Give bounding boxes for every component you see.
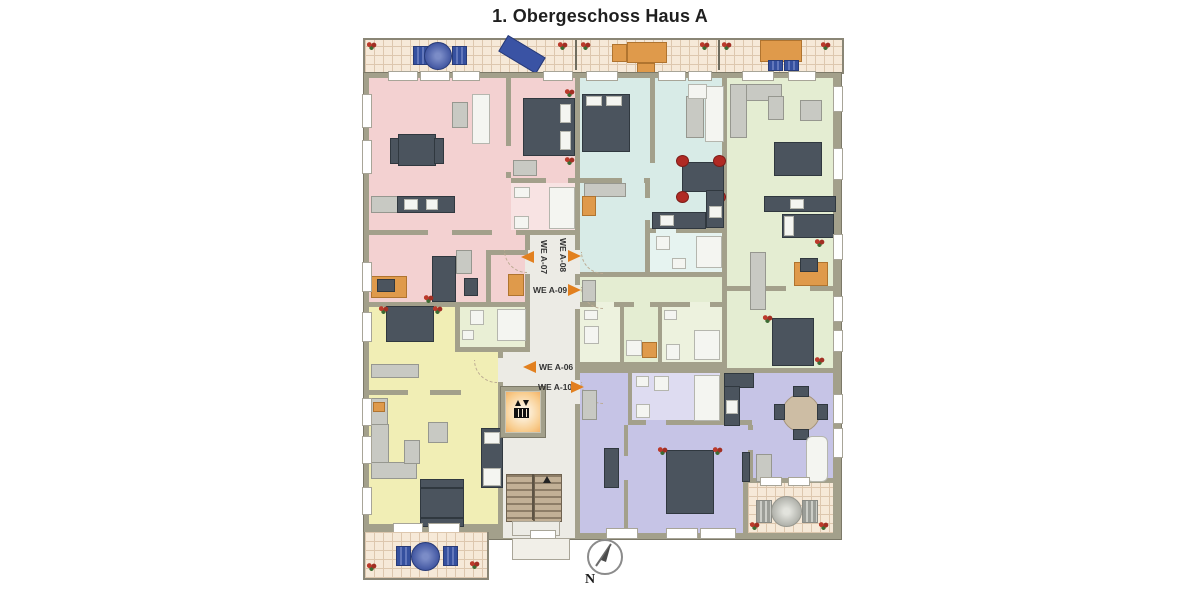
entrance-arrow-we-a-08 — [568, 250, 581, 262]
apartment-label-we-a-08: WE A-08 — [558, 238, 568, 272]
wall-segment — [486, 255, 491, 302]
flower-pot — [432, 305, 443, 314]
stove — [709, 206, 722, 218]
window — [700, 528, 736, 539]
balcony-chair — [802, 500, 818, 523]
entrance-arrow-we-a-09 — [568, 284, 581, 296]
entrance-arrow-we-a-07 — [521, 251, 534, 263]
window — [742, 71, 774, 81]
balcony-table — [771, 496, 802, 527]
balcony-chair — [452, 46, 467, 65]
sideboard — [452, 102, 468, 128]
door-opening — [428, 230, 452, 235]
window — [420, 71, 450, 81]
window — [666, 528, 698, 539]
sink — [462, 330, 474, 340]
pillow — [586, 96, 602, 106]
dining-chair — [434, 138, 444, 164]
pillow — [784, 216, 794, 236]
balcony-table — [627, 42, 667, 63]
toilet — [470, 310, 484, 325]
dining-chair — [676, 191, 689, 203]
window — [362, 487, 372, 515]
fridge — [483, 468, 501, 486]
toilet — [656, 236, 670, 250]
window — [586, 71, 618, 81]
sink — [404, 199, 418, 210]
stove — [426, 199, 438, 210]
round-table — [782, 394, 820, 432]
window — [452, 71, 480, 81]
toilet — [666, 344, 680, 360]
balcony-chair — [396, 546, 411, 566]
window — [833, 330, 843, 352]
dining-chair — [774, 404, 785, 420]
balcony-chair — [768, 60, 783, 71]
balcony-divider — [575, 40, 577, 70]
flower-pot — [564, 88, 575, 97]
armchair — [800, 100, 822, 121]
window — [833, 86, 843, 112]
stair-direction-arrow — [543, 476, 551, 483]
door-opening-we-a-06 — [498, 358, 503, 382]
lounge-chair — [806, 436, 828, 482]
flower-pot — [580, 41, 591, 50]
window — [388, 71, 418, 81]
tv-board — [742, 452, 750, 482]
flower-pot — [762, 314, 773, 323]
entrance-arrow-we-a-10 — [571, 381, 584, 393]
pillow — [560, 131, 571, 150]
apartment-label-we-a-07: WE A-07 — [539, 240, 549, 274]
window — [788, 71, 816, 81]
balcony-chair — [756, 500, 772, 523]
washer — [636, 404, 650, 418]
window — [833, 234, 843, 260]
door-opening — [748, 430, 753, 450]
flower-pot — [366, 562, 377, 571]
flower-pot — [378, 305, 389, 314]
wall-segment — [455, 307, 460, 347]
wardrobe — [582, 390, 597, 420]
sofa — [371, 462, 417, 479]
north-compass — [587, 539, 623, 575]
window — [362, 262, 372, 292]
bed — [432, 256, 456, 302]
dining-bench — [420, 479, 464, 488]
dining-chair — [793, 386, 809, 397]
wall-segment — [455, 347, 530, 352]
sink — [484, 432, 500, 444]
towel-shelf — [642, 342, 657, 358]
flower-pot — [699, 41, 710, 50]
balcony-door — [788, 477, 810, 486]
north-label: N — [585, 572, 595, 588]
floor-plan-page: 1. Obergeschoss Haus A — [0, 0, 1200, 600]
balcony-divider — [718, 40, 720, 70]
flower-pot — [469, 560, 480, 569]
door-opening — [492, 230, 516, 235]
wall-segment — [727, 286, 833, 291]
shower — [696, 236, 722, 268]
dresser — [464, 278, 478, 296]
sofa — [705, 86, 724, 142]
wall-segment — [620, 307, 624, 362]
sink — [660, 215, 674, 226]
toilet — [584, 326, 599, 344]
window — [833, 296, 843, 322]
shower — [694, 330, 720, 360]
sink — [664, 310, 677, 320]
window — [833, 394, 843, 424]
balcony-table — [760, 40, 802, 62]
wall-segment — [658, 307, 662, 362]
sink — [584, 310, 598, 320]
door-opening — [546, 178, 568, 183]
balcony-chair — [443, 546, 458, 566]
apartment-label-we-a-09: WE A-09 — [533, 285, 567, 295]
flower-pot — [557, 41, 568, 50]
door-opening — [645, 198, 650, 220]
window — [606, 528, 638, 539]
bed — [772, 318, 814, 366]
flower-pot — [657, 446, 668, 455]
door-opening — [646, 420, 666, 425]
balcony-table — [424, 42, 452, 70]
flower-pot — [818, 521, 829, 530]
window — [362, 398, 372, 426]
wardrobe — [513, 160, 537, 176]
shelf — [508, 274, 524, 296]
staircase-divider — [532, 474, 534, 520]
window — [362, 436, 372, 464]
balcony-door — [760, 477, 782, 486]
dining-table — [774, 142, 822, 176]
dining-table — [420, 488, 464, 518]
apartment-label-we-a-06: WE A-06 — [539, 362, 573, 372]
chaise — [686, 96, 704, 138]
door-opening — [624, 456, 628, 480]
window — [543, 71, 573, 81]
flower-pot — [712, 446, 723, 455]
door-opening — [634, 302, 650, 307]
side-table — [768, 96, 784, 120]
wardrobe — [456, 250, 472, 274]
flower-pot — [423, 294, 434, 303]
entrance-porch — [512, 538, 570, 560]
bathtub — [694, 375, 720, 421]
coffee-table — [404, 440, 420, 464]
sink — [514, 187, 530, 198]
washer — [626, 340, 642, 356]
window — [688, 71, 712, 81]
sink — [790, 199, 804, 209]
dining-table — [398, 134, 436, 166]
flower-pot — [814, 356, 825, 365]
flower-pot — [814, 238, 825, 247]
door-opening — [786, 286, 810, 291]
wardrobe — [582, 196, 596, 216]
sofa — [688, 84, 707, 99]
flower-pot — [721, 41, 732, 50]
wardrobe — [582, 280, 596, 302]
door-opening — [690, 302, 710, 307]
toilet — [654, 376, 669, 391]
flower-pot — [366, 41, 377, 50]
wardrobe — [750, 252, 766, 310]
shelf — [472, 94, 490, 144]
sideboard — [584, 183, 626, 197]
toilet — [514, 216, 529, 229]
sink — [636, 376, 649, 387]
flower-pot — [749, 521, 760, 530]
window — [362, 140, 372, 174]
dining-chair — [713, 155, 726, 167]
window — [833, 148, 843, 180]
sink — [672, 258, 686, 269]
towel-shelf — [373, 402, 385, 412]
door-opening — [408, 390, 430, 395]
flower-pot — [820, 41, 831, 50]
bathtub — [549, 187, 575, 229]
laptop — [800, 258, 818, 272]
staircase-flight — [506, 474, 534, 522]
balcony-table — [411, 542, 440, 571]
window — [833, 428, 843, 458]
monitor — [377, 279, 395, 292]
wall-segment — [650, 78, 655, 163]
wardrobe — [604, 448, 619, 488]
bed — [386, 306, 434, 342]
flower-pot — [564, 156, 575, 165]
wall-segment — [628, 373, 632, 420]
shower — [497, 309, 526, 341]
window — [362, 312, 372, 342]
pillow — [560, 104, 571, 123]
door-opening — [506, 146, 511, 172]
balcony-chair — [784, 60, 799, 71]
elevator-icon — [513, 400, 531, 420]
entrance-arrow-we-a-06 — [523, 361, 536, 373]
dining-chair — [676, 155, 689, 167]
apartment-label-we-a-10: WE A-10 — [538, 382, 572, 392]
window — [362, 94, 372, 128]
window — [658, 71, 686, 81]
sofa — [730, 84, 747, 138]
balcony-chair — [612, 44, 627, 62]
armchair — [428, 422, 448, 443]
page-title: 1. Obergeschoss Haus A — [0, 6, 1200, 27]
bed — [666, 450, 714, 514]
stove — [726, 400, 738, 414]
pillow — [606, 96, 622, 106]
wall-segment — [580, 362, 722, 368]
kitchen-counter — [371, 196, 399, 213]
sideboard — [371, 364, 419, 378]
dining-chair — [817, 404, 828, 420]
